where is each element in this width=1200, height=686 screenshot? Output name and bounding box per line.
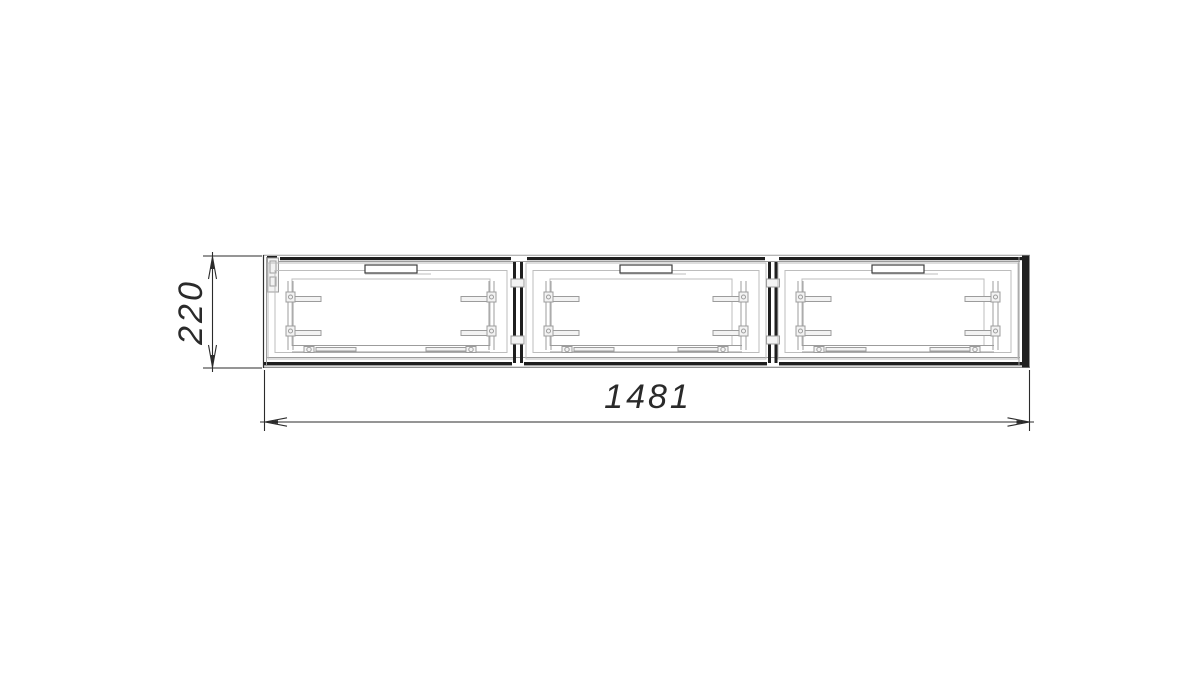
technical-drawing-canvas: 220 1481 (0, 0, 1200, 686)
bottom-rail (802, 346, 994, 353)
cabinet-body (263, 255, 1030, 368)
height-dimension: 220 (172, 252, 262, 372)
cabinet-section-2 (526, 263, 766, 359)
cabinet-section-1 (268, 263, 514, 359)
door-frame (778, 263, 1018, 359)
door-handle (620, 265, 672, 273)
door-handle (365, 265, 417, 273)
inner-panel (292, 279, 490, 346)
door-handle (872, 265, 924, 273)
right-edge (1019, 256, 1030, 368)
left-hinge-rail (796, 281, 831, 350)
door-frame (268, 263, 514, 359)
width-dimension-label: 1481 (604, 378, 692, 416)
bottom-rail (550, 346, 742, 353)
left-hinge-rail (544, 281, 579, 350)
right-hinge-rail (461, 281, 496, 350)
left-hinge-rail (286, 281, 321, 350)
top-edge (263, 255, 1030, 261)
hinge-block (267, 256, 279, 292)
height-dimension-label: 220 (172, 279, 210, 346)
width-dimension: 1481 (260, 370, 1034, 431)
cabinet-section-3 (778, 263, 1018, 359)
right-hinge-rail (713, 281, 748, 350)
left-edge (264, 255, 267, 368)
door-frame (526, 263, 766, 359)
bottom-rail (292, 346, 490, 353)
drawing-page: 220 1481 (0, 0, 1200, 686)
right-hinge-rail (965, 281, 1000, 350)
section-divider-1 (511, 262, 524, 363)
